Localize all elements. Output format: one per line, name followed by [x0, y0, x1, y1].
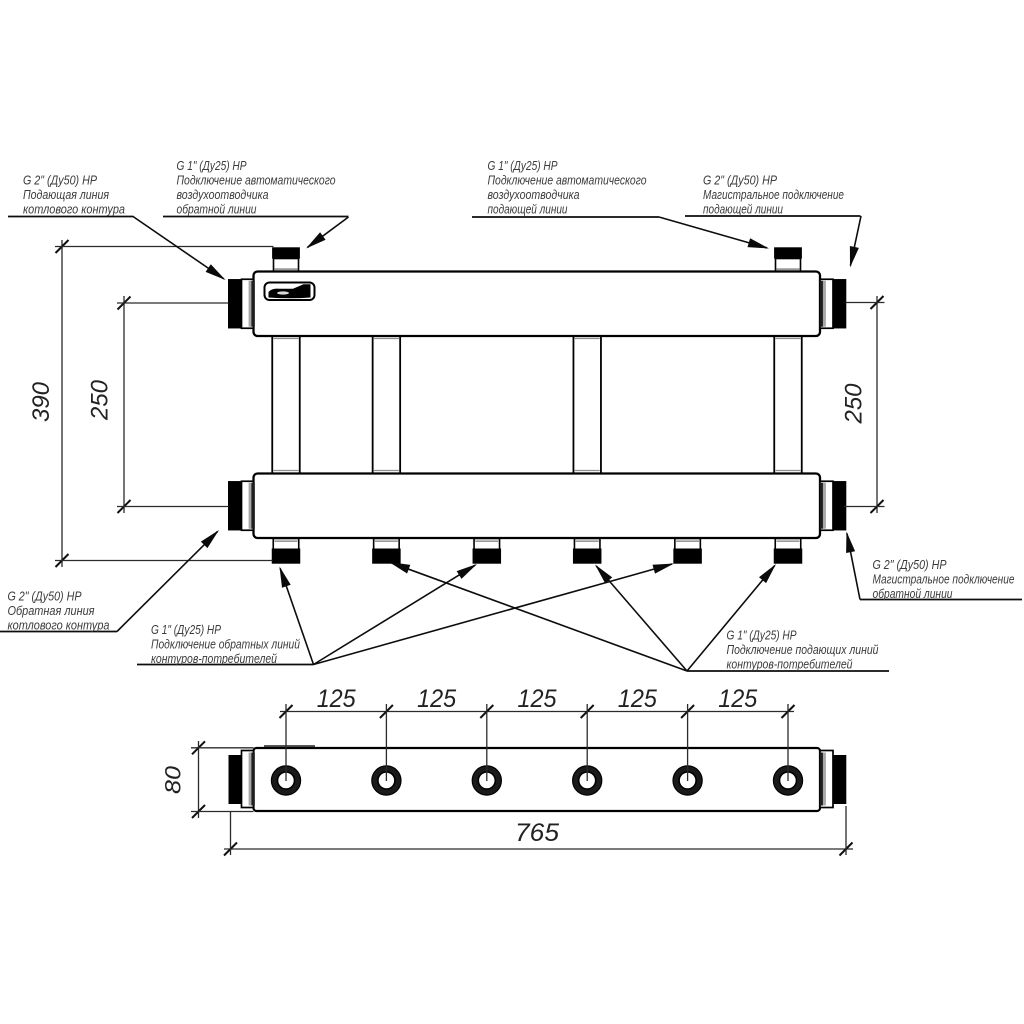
svg-text:контуров-потребителей: контуров-потребителей	[151, 651, 277, 666]
svg-text:контуров-потребителей: контуров-потребителей	[727, 657, 853, 672]
svg-text:обратной линии: обратной линии	[873, 586, 953, 601]
svg-text:125: 125	[718, 685, 757, 713]
svg-text:Обратная линия: Обратная линия	[8, 603, 95, 618]
svg-text:125: 125	[618, 685, 657, 713]
svg-text:125: 125	[518, 685, 557, 713]
svg-text:125: 125	[417, 685, 456, 713]
svg-text:обратной линии: обратной линии	[177, 202, 257, 217]
svg-text:G 2" (Ду50) НР: G 2" (Ду50) НР	[703, 173, 777, 188]
svg-text:G 2" (Ду50) НР: G 2" (Ду50) НР	[873, 557, 947, 572]
svg-text:390: 390	[28, 381, 55, 422]
svg-text:подающей линии: подающей линии	[703, 202, 783, 217]
svg-text:Подключение обратных линий: Подключение обратных линий	[151, 637, 300, 652]
svg-text:G 2" (Ду50) НР: G 2" (Ду50) НР	[23, 173, 97, 188]
svg-text:Подключение подающих линий: Подключение подающих линий	[727, 642, 879, 657]
svg-text:G 1" (Ду25) НР: G 1" (Ду25) НР	[177, 158, 247, 173]
svg-text:подающей линии: подающей линии	[488, 202, 568, 217]
svg-text:250: 250	[841, 383, 868, 425]
svg-text:Подключение автоматического: Подключение автоматического	[488, 173, 647, 188]
svg-text:G 2" (Ду50) НР: G 2" (Ду50) НР	[8, 589, 82, 604]
svg-text:G 1" (Ду25) НР: G 1" (Ду25) НР	[488, 158, 558, 173]
svg-text:Магистральное подключение: Магистральное подключение	[703, 187, 844, 202]
svg-text:Магистральное подключение: Магистральное подключение	[873, 572, 1015, 587]
svg-text:765: 765	[515, 819, 559, 847]
svg-text:Подключение автоматического: Подключение автоматического	[177, 173, 336, 188]
svg-text:250: 250	[87, 379, 114, 421]
svg-text:Подающая линия: Подающая линия	[23, 187, 109, 202]
svg-text:G 1" (Ду25) НР: G 1" (Ду25) НР	[727, 628, 797, 643]
svg-text:воздухоотводчика: воздухоотводчика	[488, 187, 580, 202]
svg-text:котлового контура: котлового контура	[8, 618, 110, 633]
svg-text:G 1" (Ду25) НР: G 1" (Ду25) НР	[151, 622, 221, 637]
svg-text:80: 80	[161, 765, 186, 794]
svg-text:125: 125	[317, 685, 356, 713]
svg-text:воздухоотводчика: воздухоотводчика	[177, 187, 269, 202]
svg-text:котлового контура: котлового контура	[23, 202, 125, 217]
